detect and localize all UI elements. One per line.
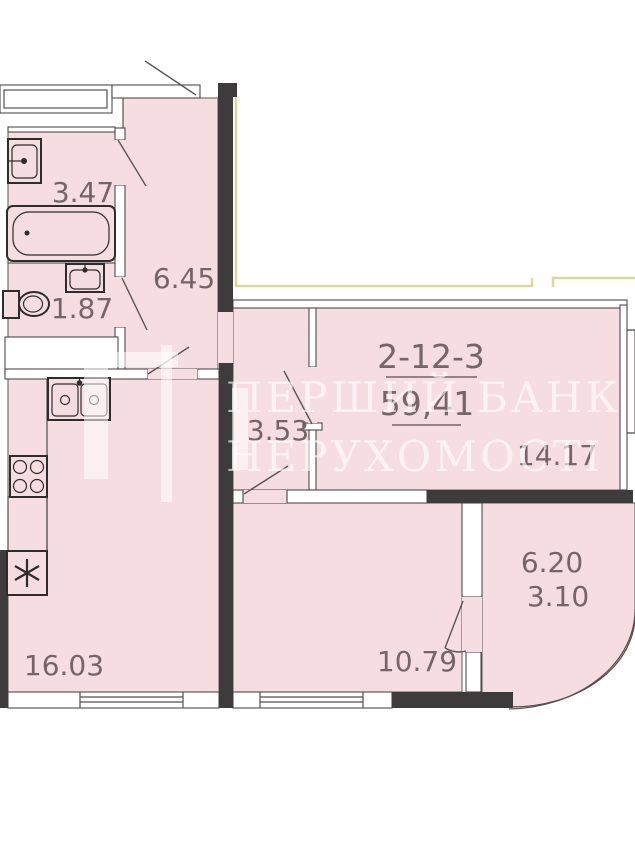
- exterior-lines: [236, 97, 635, 287]
- area-label-kitchen: 16.03: [24, 649, 104, 682]
- fridge-icon: [7, 551, 47, 595]
- wall-segment: [115, 128, 125, 140]
- watermark-logo-leg-left: [84, 367, 108, 479]
- wall-segment: [112, 85, 200, 98]
- watermark-text-line2: НЕРУХОМОСТІ: [226, 432, 603, 481]
- area-label-balcony-reduced: 3.10: [527, 580, 589, 613]
- window-living-right: [627, 330, 635, 433]
- watermark-text-line1: ПЕРШИЙ БАНК: [226, 370, 621, 422]
- opening-balcony-door: [462, 597, 482, 652]
- room-kitchen-fill: [8, 379, 219, 692]
- area-label-bedroom: 10.79: [377, 645, 457, 678]
- floor-plan-page: 3.47 6.45 1.87 3.53 2-12-3 59,41 14.17 6…: [0, 0, 635, 850]
- toilet-icon: [3, 291, 49, 318]
- stove-icon: [10, 456, 47, 497]
- area-label-wc: 1.87: [51, 292, 113, 325]
- exterior-line-right: [553, 278, 635, 287]
- apartment-number-label: 2-12-3: [377, 337, 485, 376]
- opening-wc-door: [114, 277, 126, 327]
- exterior-line-left: [236, 97, 532, 286]
- opening-hallway-corridor: [218, 312, 233, 363]
- bathtub-icon: [7, 206, 115, 261]
- wall-segment: [8, 692, 219, 708]
- wall-segment: [309, 308, 316, 367]
- wall-segment: [620, 305, 627, 490]
- opening-bathroom-door: [114, 140, 126, 185]
- wall-black-cap: [218, 83, 237, 97]
- wall-segment: [115, 185, 125, 277]
- wall-black-bottom: [392, 692, 513, 708]
- wall-black-upper: [218, 97, 233, 312]
- wall-segment-shaft: [0, 85, 112, 113]
- window-balcony-upper: [462, 503, 482, 597]
- wall-segment: [233, 692, 392, 708]
- wc-sink-icon: [66, 264, 104, 292]
- area-label-hallway: 6.45: [153, 262, 215, 295]
- wall-segment: [197, 369, 219, 379]
- wall-black-balcony-top: [427, 490, 633, 503]
- floor-plan: 3.47 6.45 1.87 3.53 2-12-3 59,41 14.17 6…: [0, 0, 635, 850]
- opening-kitchen-door: [148, 369, 197, 379]
- area-label-balcony-full: 6.20: [521, 546, 583, 579]
- opening-bedroom-door: [243, 490, 287, 503]
- window-balcony-lower: [466, 652, 481, 692]
- bathroom-sink-icon: [8, 139, 41, 183]
- watermark-logo-leg-right: [161, 345, 172, 502]
- wall-segment: [8, 127, 115, 132]
- wall-segment: [233, 300, 627, 308]
- area-label-bathroom: 3.47: [52, 176, 114, 209]
- room-hallway-fill: [123, 98, 218, 369]
